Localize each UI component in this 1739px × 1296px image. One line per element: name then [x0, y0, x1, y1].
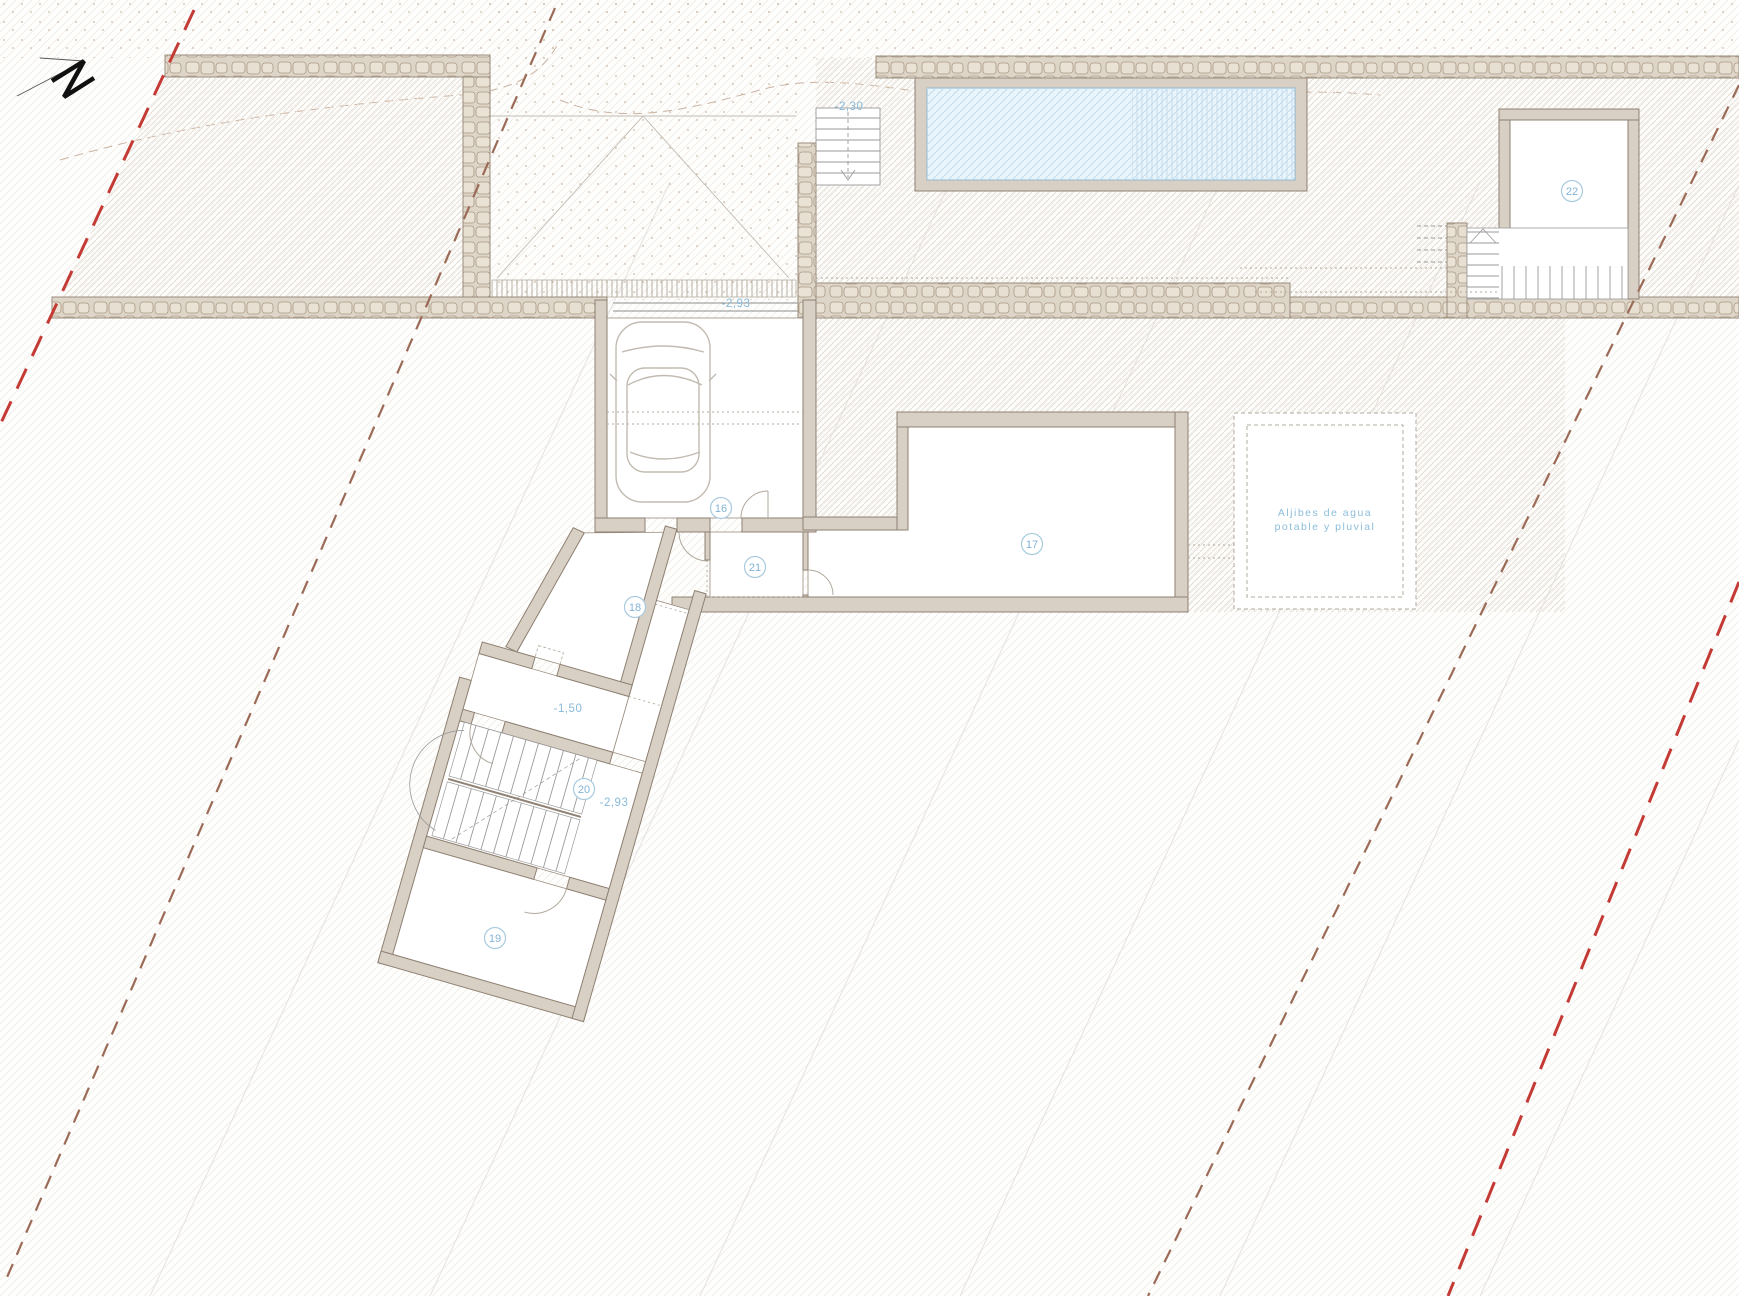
room-label-18: 18: [625, 597, 646, 618]
svg-text:22: 22: [1566, 186, 1578, 198]
level-label-terrace: -2,30: [835, 101, 864, 113]
floor-plan-svg: Aljibes de agua potable y pluvial -2,30 …: [0, 0, 1739, 1296]
level-label-garage: -2,93: [722, 298, 751, 310]
water-tanks-label-line1: Aljibes de agua: [1278, 507, 1372, 519]
room-label-17: 17: [1022, 534, 1043, 555]
entry-steps: [816, 108, 880, 185]
room-label-19: 19: [485, 928, 506, 949]
svg-text:18: 18: [629, 602, 641, 614]
pool: [915, 77, 1307, 191]
stone-wall-lower-left: [52, 297, 607, 318]
level-label-stairhall: -2,93: [600, 797, 629, 809]
driveway-grate: [492, 280, 796, 297]
pool-steps-zone: [1132, 89, 1294, 179]
courtyard-stipple: [488, 0, 798, 300]
svg-text:19: 19: [489, 933, 501, 945]
level-label-landing: -1,50: [554, 703, 583, 715]
room-label-20: 20: [574, 779, 595, 800]
ground-stipple-top: [0, 0, 1739, 58]
stone-wall-terrace-b: [1290, 297, 1739, 318]
room-label-21: 21: [745, 557, 766, 578]
water-tanks-label-line2: potable y pluvial: [1275, 521, 1376, 533]
stone-wall-terrace-a: [816, 283, 1290, 318]
svg-text:17: 17: [1026, 539, 1038, 551]
svg-text:21: 21: [749, 562, 761, 574]
stone-pillar-stairs: [1447, 223, 1467, 318]
svg-text:16: 16: [715, 503, 727, 515]
room-label-22: 22: [1562, 181, 1583, 202]
stone-pillar-courtyard: [798, 143, 816, 318]
svg-text:20: 20: [578, 784, 590, 796]
room-label-16: 16: [711, 498, 732, 519]
stone-wall-top-left: [165, 55, 490, 77]
stone-wall-top-right: [876, 56, 1739, 78]
